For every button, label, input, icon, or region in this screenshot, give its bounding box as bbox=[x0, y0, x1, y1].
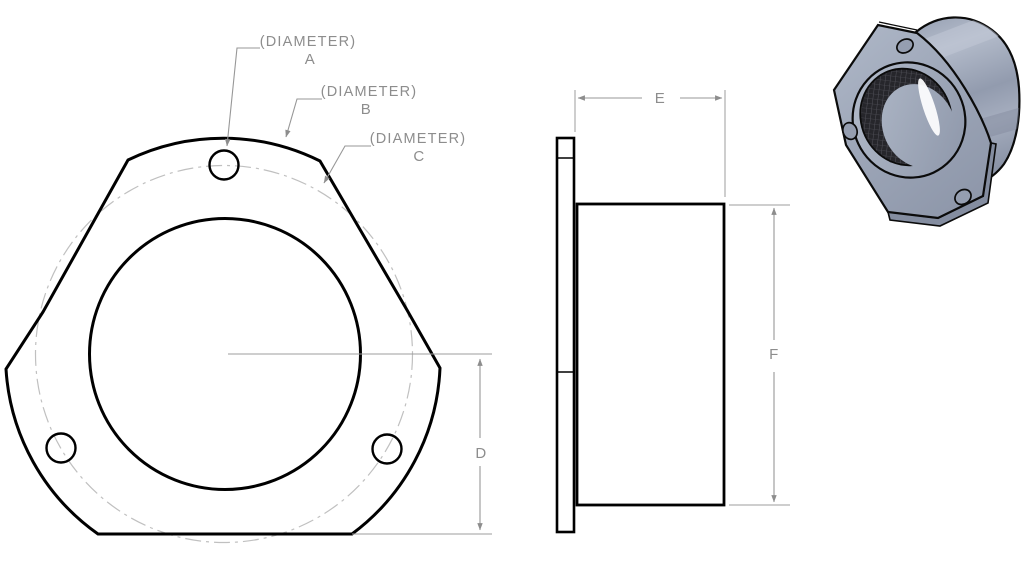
dimension-f: F bbox=[729, 205, 790, 505]
diameter-a-label: (DIAMETER) bbox=[260, 34, 357, 50]
side-cylinder bbox=[577, 204, 724, 505]
drawing-canvas: (DIAMETER) A (DIAMETER) B (DIAMETER) C D bbox=[0, 0, 1035, 570]
dim-f-letter: F bbox=[769, 346, 779, 363]
bolt-hole-top bbox=[210, 151, 239, 180]
flange-outline bbox=[6, 138, 440, 534]
leader-diameter-c: (DIAMETER) C bbox=[324, 131, 466, 183]
diameter-b-letter: B bbox=[361, 101, 372, 118]
side-flange-plate bbox=[557, 138, 574, 532]
diameter-b-label: (DIAMETER) bbox=[321, 84, 418, 100]
dim-e-letter: E bbox=[655, 90, 666, 107]
diameter-a-letter: A bbox=[305, 51, 316, 68]
diameter-c-label: (DIAMETER) bbox=[370, 131, 467, 147]
isometric-render bbox=[834, 0, 1035, 226]
leader-diameter-b: (DIAMETER) B bbox=[286, 84, 417, 137]
dim-d-letter: D bbox=[475, 445, 486, 462]
dimension-d: D bbox=[228, 354, 492, 534]
cad-drawing-svg: (DIAMETER) A (DIAMETER) B (DIAMETER) C D bbox=[0, 0, 1035, 570]
diameter-c-letter: C bbox=[413, 148, 424, 165]
dimension-e: E bbox=[575, 90, 725, 197]
front-view: (DIAMETER) A (DIAMETER) B (DIAMETER) C D bbox=[6, 34, 492, 543]
side-view: E F bbox=[557, 90, 790, 532]
